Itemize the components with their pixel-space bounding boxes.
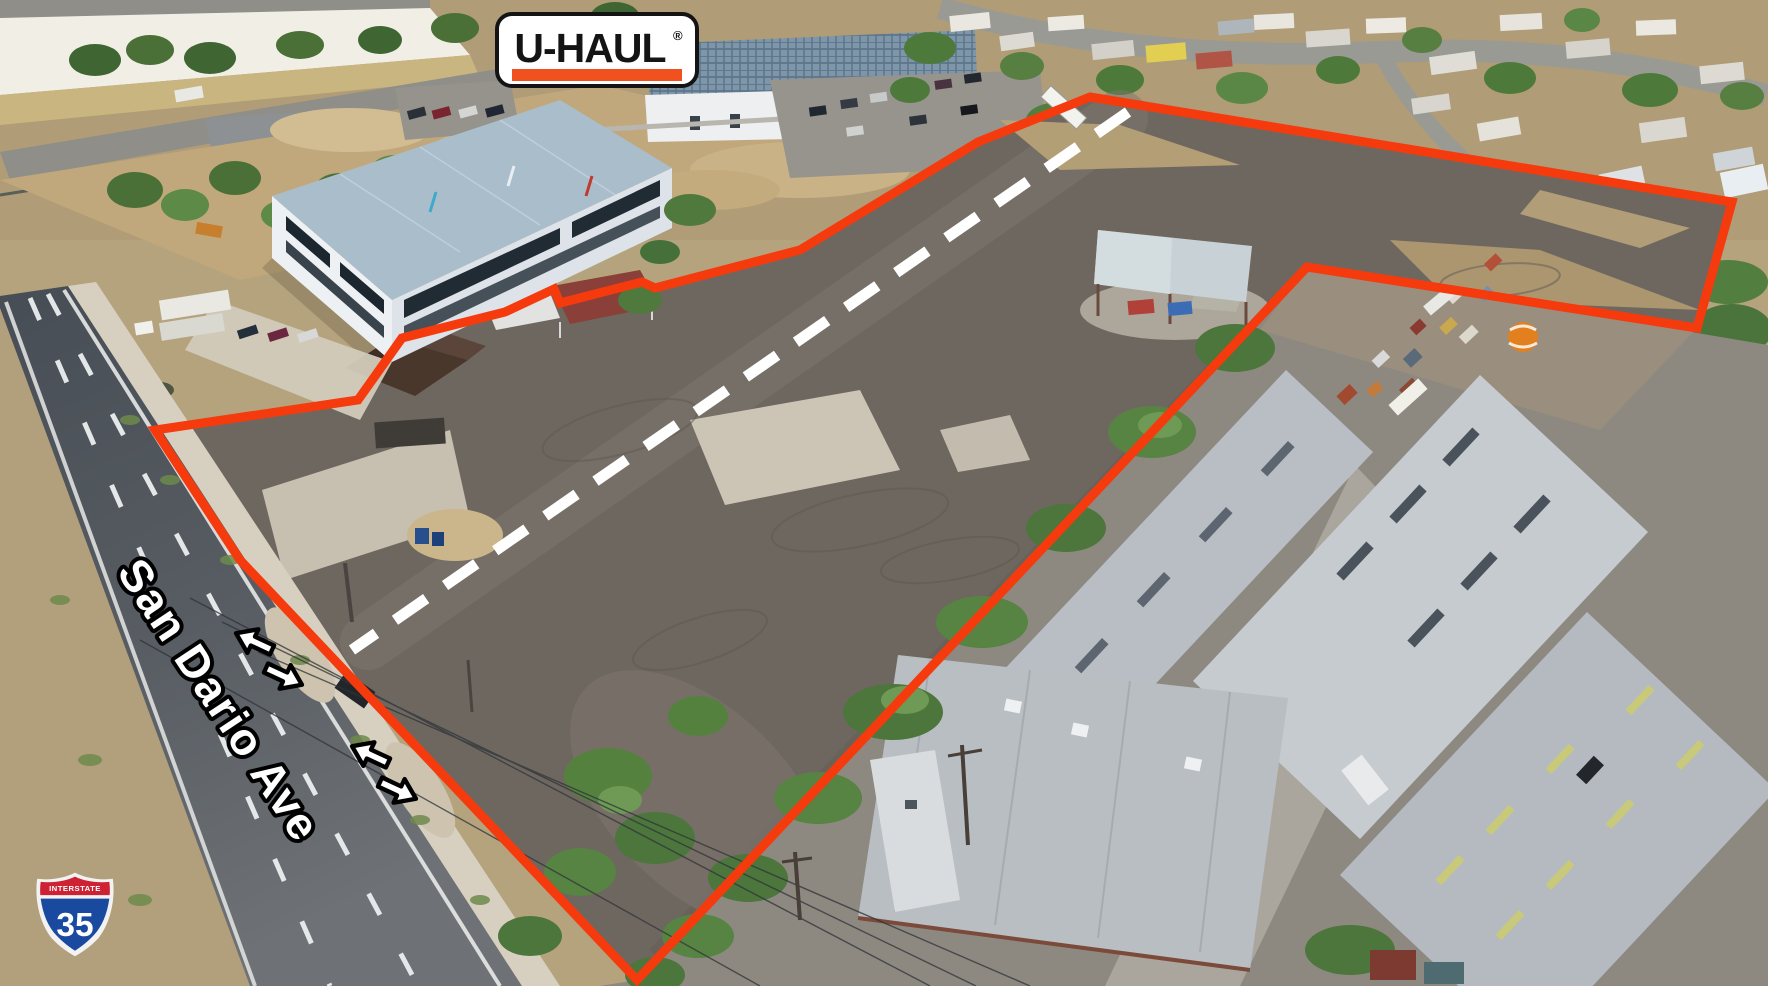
red-shed — [1370, 950, 1416, 980]
open-canopy-shed — [1080, 230, 1270, 340]
uhaul-logo: U-HAUL ® — [497, 14, 697, 86]
route-number: 35 — [56, 907, 93, 944]
aerial-site-photo: San Dario Ave U-HAUL ® INTERSTATE 35 — [0, 0, 1768, 986]
interstate-text: INTERSTATE — [49, 884, 101, 893]
registered-trademark-icon: ® — [673, 28, 683, 43]
striped-ball — [1508, 322, 1538, 352]
uhaul-orange-bar — [512, 69, 682, 81]
scene-canvas: San Dario Ave U-HAUL ® INTERSTATE 35 — [0, 0, 1768, 986]
uhaul-wordmark: U-HAUL — [514, 25, 665, 71]
